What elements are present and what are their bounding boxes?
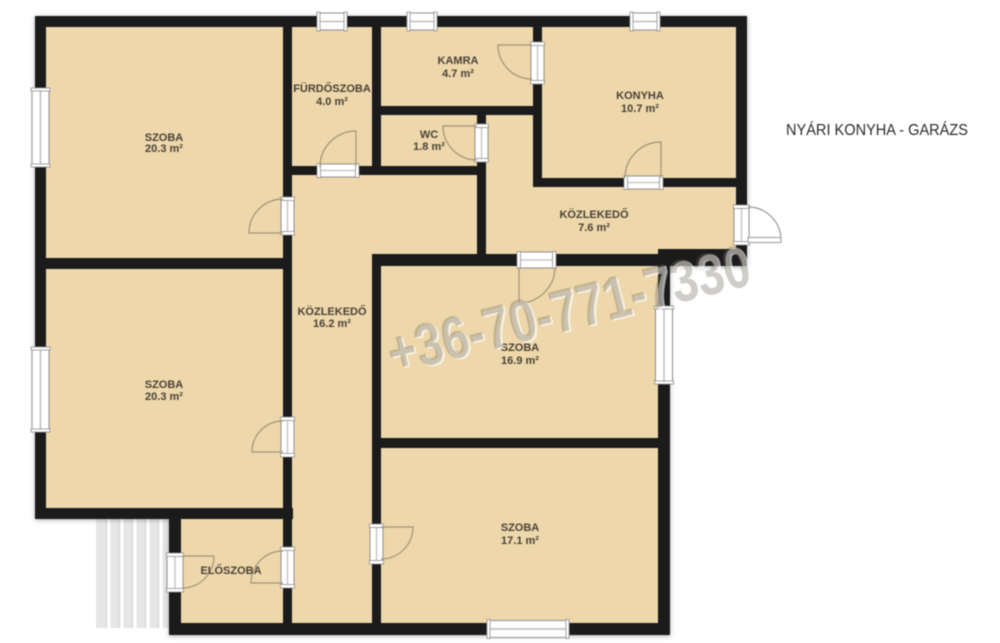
svg-text:SZOBA: SZOBA [145, 379, 184, 391]
svg-text:4.7 m²: 4.7 m² [442, 68, 474, 80]
svg-text:KONYHA: KONYHA [616, 90, 664, 102]
svg-text:17.1 m²: 17.1 m² [501, 535, 539, 547]
svg-text:ELŐSZOBA: ELŐSZOBA [200, 564, 261, 577]
svg-text:1.8 m²: 1.8 m² [413, 141, 445, 153]
svg-text:7.6 m²: 7.6 m² [578, 222, 610, 234]
svg-text:16.2 m²: 16.2 m² [313, 318, 351, 330]
svg-text:20.3 m²: 20.3 m² [145, 143, 183, 155]
svg-text:4.0 m²: 4.0 m² [316, 96, 348, 108]
svg-text:KÖZLEKEDŐ: KÖZLEKEDŐ [559, 208, 629, 221]
svg-text:FÜRDŐSZOBA: FÜRDŐSZOBA [293, 82, 371, 95]
svg-text:20.3 m²: 20.3 m² [145, 391, 183, 403]
svg-text:KÖZLEKEDŐ: KÖZLEKEDŐ [297, 305, 367, 318]
svg-text:KAMRA: KAMRA [438, 55, 479, 67]
svg-text:SZOBA: SZOBA [501, 522, 540, 534]
svg-text:10.7 m²: 10.7 m² [621, 103, 659, 115]
svg-text:WC: WC [420, 129, 438, 141]
svg-text:NYÁRI KONYHA - GARÁZS: NYÁRI KONYHA - GARÁZS [786, 122, 968, 139]
